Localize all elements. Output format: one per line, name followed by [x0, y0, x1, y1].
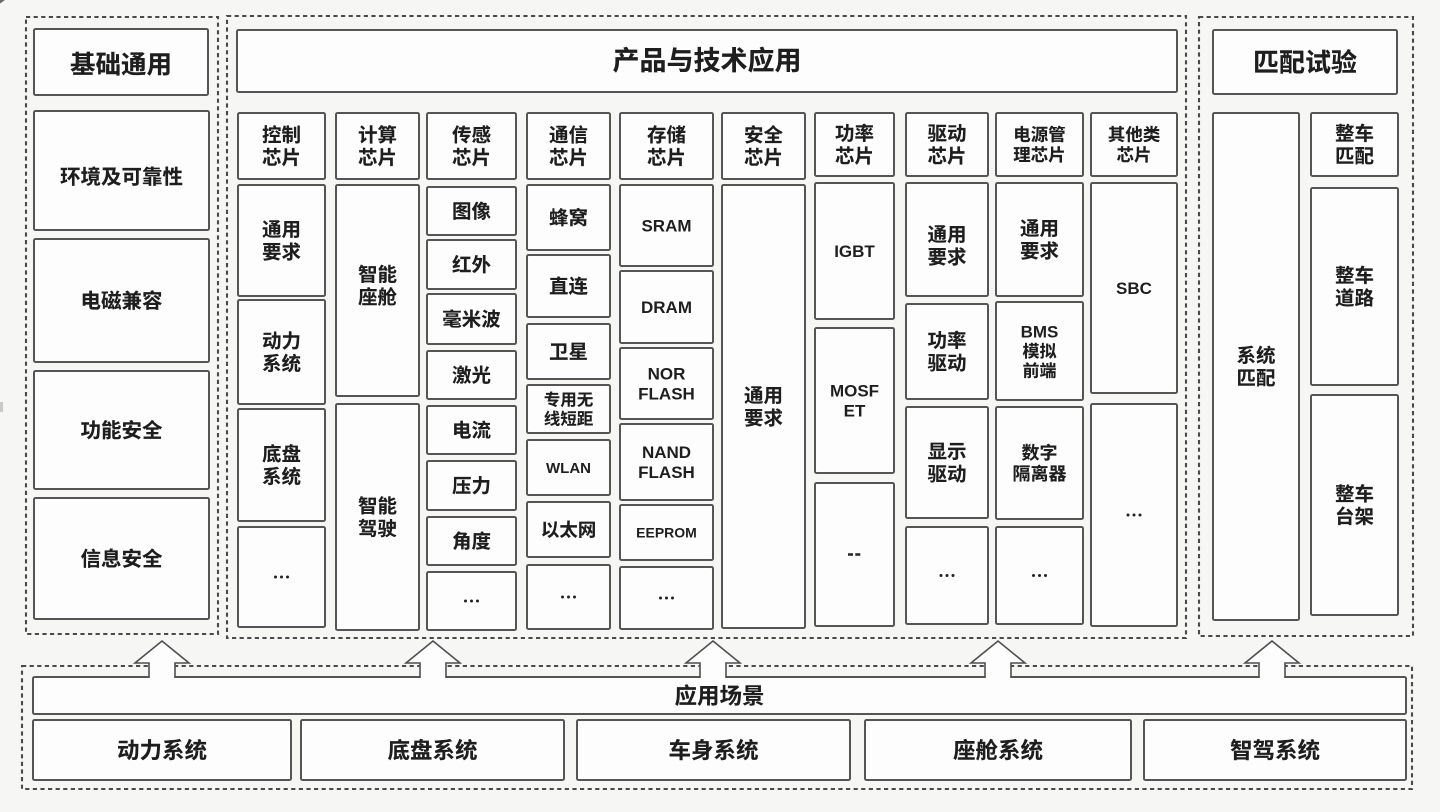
svg-text:ET: ET [844, 402, 866, 421]
svg-text:SBC: SBC [1116, 279, 1152, 298]
svg-text:WLAN: WLAN [546, 460, 591, 477]
svg-text:SRAM: SRAM [641, 217, 691, 236]
svg-text:FLASH: FLASH [638, 463, 695, 482]
svg-text:MOSF: MOSF [830, 382, 879, 401]
svg-text:NAND: NAND [642, 443, 691, 462]
svg-text:NOR: NOR [648, 365, 686, 384]
svg-text:BMS: BMS [1021, 323, 1059, 342]
svg-text:FLASH: FLASH [638, 385, 695, 404]
svg-text:IGBT: IGBT [834, 242, 875, 261]
svg-text:DRAM: DRAM [641, 298, 692, 317]
svg-text:EEPROM: EEPROM [636, 525, 697, 541]
